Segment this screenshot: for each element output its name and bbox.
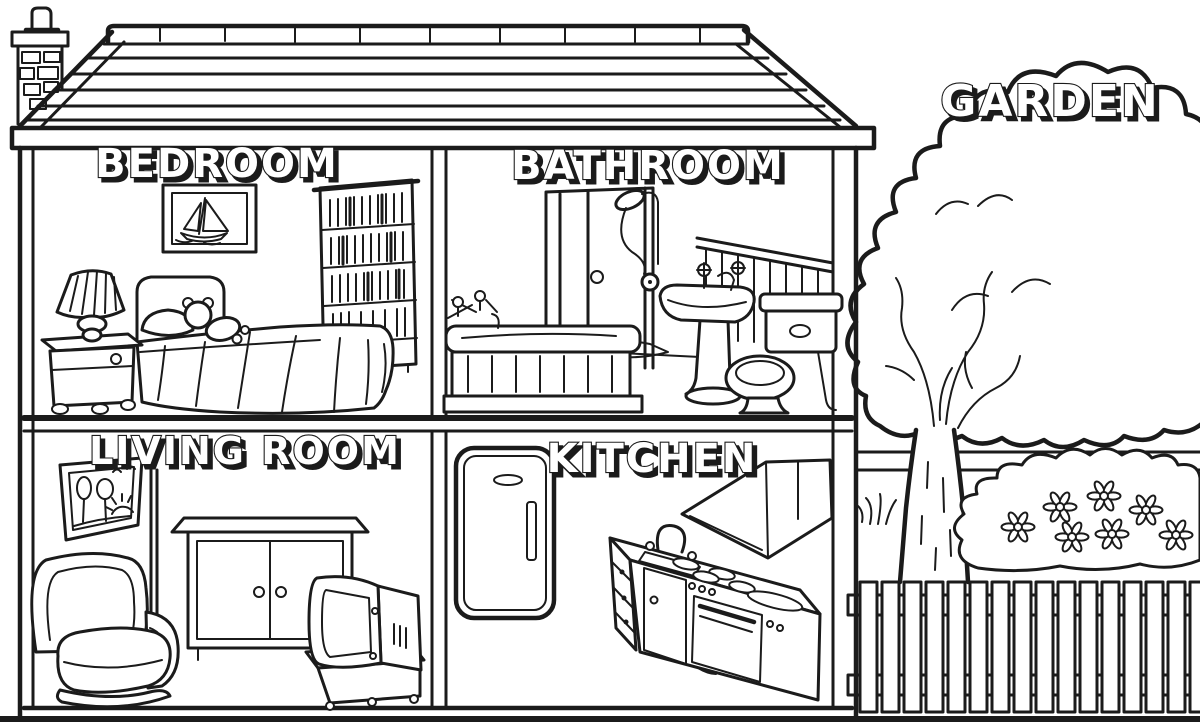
- blanket: [137, 325, 393, 414]
- tub-rim: [446, 326, 640, 352]
- roof-planks: [26, 44, 840, 120]
- living-room-label: LIVING ROOM: [89, 429, 401, 473]
- chimney-pot: [32, 8, 51, 28]
- fridge-handle: [527, 502, 536, 560]
- cabinet-top: [172, 518, 368, 532]
- floor-lamp-pole: [151, 470, 157, 630]
- grass-tuft-left: [858, 494, 896, 524]
- shower-door-knob: [591, 271, 603, 283]
- nightstand: [42, 334, 142, 414]
- garden-label: GARDEN: [940, 76, 1159, 127]
- table-lamp: [57, 271, 124, 341]
- picket-fence: [848, 582, 1200, 712]
- bedroom-label: BEDROOM: [95, 141, 339, 187]
- refrigerator: [456, 448, 554, 618]
- cabinet-knob-left: [254, 587, 264, 597]
- shower-head: [613, 187, 658, 290]
- sink-counter-and-stove: [610, 526, 820, 701]
- chimney-cap: [12, 32, 68, 46]
- bedroom: BEDROOM BEDROOM: [42, 141, 418, 414]
- roof: [12, 26, 874, 148]
- bathroom-label: BATHROOM: [511, 143, 785, 189]
- roof-right-slope: [744, 30, 856, 126]
- chimney-bricks: [20, 52, 60, 109]
- toilet-bowl: [726, 356, 794, 400]
- bathtub: [444, 291, 642, 412]
- garden: GARDEN GARDEN: [847, 63, 1200, 712]
- living-room: LIVING ROOM LIVING ROOM: [32, 429, 424, 710]
- toilet-tank-lid: [760, 294, 842, 311]
- bath-taps: [448, 291, 499, 328]
- television: [306, 577, 424, 710]
- ridge-cap: [108, 26, 748, 42]
- cabinet-knob-right: [276, 587, 286, 597]
- kitchen: KITCHEN KITCHEN: [456, 436, 832, 700]
- kitchen-label: KITCHEN: [547, 436, 758, 482]
- bathroom: BATHROOM BATHROOM: [444, 143, 842, 413]
- sailboat-picture: [163, 185, 256, 252]
- tub-plinth: [444, 396, 642, 412]
- house-rooms-illustration: GARDEN GARDEN: [0, 0, 1200, 728]
- centre-wall: [432, 150, 446, 708]
- flush-button: [790, 325, 810, 337]
- toilet-base: [740, 398, 788, 413]
- ridge-cap-segments: [160, 26, 700, 42]
- drawer-knob: [111, 354, 121, 364]
- fridge-logo: [494, 475, 522, 485]
- armchair-seat: [58, 628, 170, 692]
- nightstand-body: [50, 347, 134, 406]
- coloring-page: GARDEN GARDEN: [0, 0, 1200, 728]
